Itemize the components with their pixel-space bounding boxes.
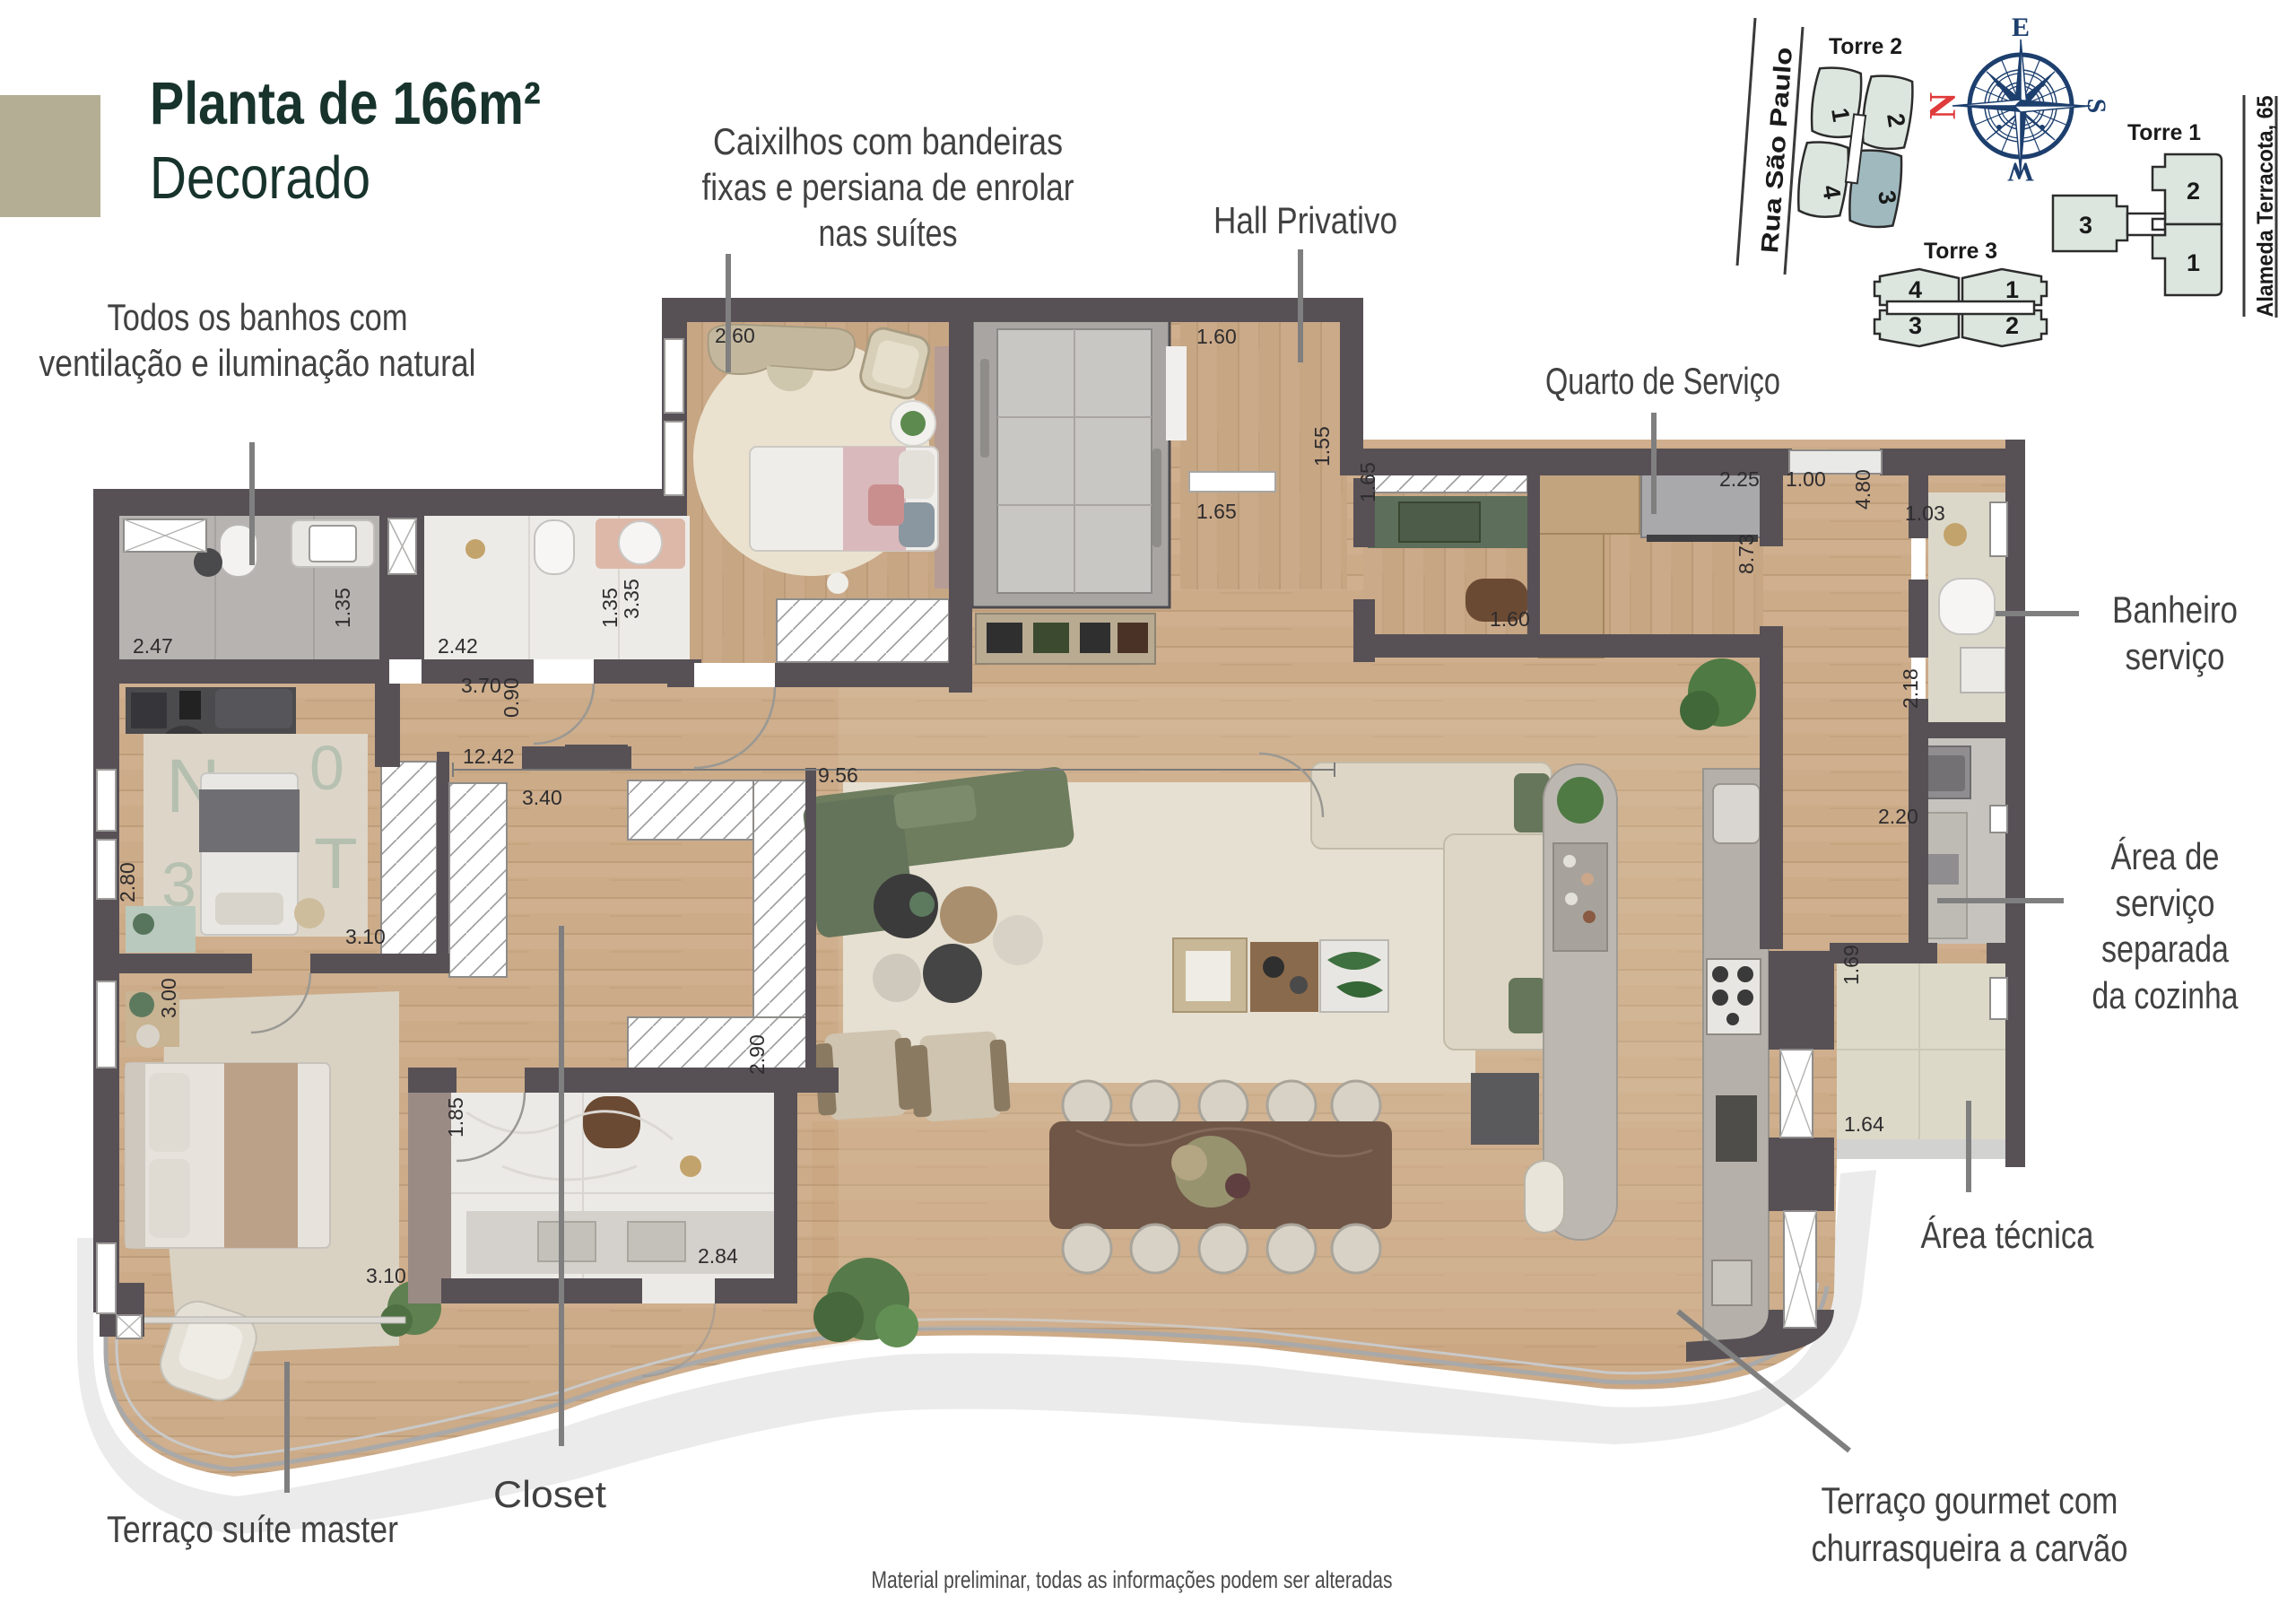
svg-text:2.60: 2.60 [715,324,755,347]
svg-text:Todos os banhos com: Todos os banhos com [108,296,408,338]
svg-text:8.73: 8.73 [1735,534,1758,574]
svg-text:Caixilhos com bandeiras: Caixilhos com bandeiras [713,120,1063,162]
svg-text:Área técnica: Área técnica [1921,1214,2095,1256]
svg-text:1.55: 1.55 [1310,426,1334,466]
svg-text:da cozinha: da cozinha [2092,974,2239,1016]
svg-text:Planta de 166m²: Planta de 166m² [150,70,541,137]
svg-text:2.18: 2.18 [1899,668,1922,709]
svg-text:Hall Privativo: Hall Privativo [1213,199,1397,241]
svg-text:3.10: 3.10 [345,925,386,948]
svg-text:Terraço suíte master: Terraço suíte master [107,1508,398,1550]
svg-text:2: 2 [2005,312,2019,339]
svg-text:S: S [2082,99,2111,114]
svg-text:1.35: 1.35 [598,588,622,628]
svg-text:2.25: 2.25 [1719,467,1760,491]
svg-text:4.80: 4.80 [1851,469,1874,510]
svg-text:2: 2 [2187,178,2200,205]
svg-text:Área de: Área de [2111,835,2220,877]
svg-text:2.20: 2.20 [1878,805,1918,828]
svg-text:serviço: serviço [2116,882,2215,924]
svg-text:2.90: 2.90 [745,1034,769,1075]
svg-text:ventilação e iluminação natura: ventilação e iluminação natural [39,342,476,384]
svg-text:3.00: 3.00 [157,978,180,1018]
svg-text:Torre 1: Torre 1 [2127,120,2201,145]
svg-text:E: E [2012,13,2030,42]
svg-text:T: T [314,824,358,903]
svg-text:3.70: 3.70 [461,674,501,697]
svg-text:Terraço gourmet com: Terraço gourmet com [1822,1479,2118,1521]
svg-text:3.40: 3.40 [522,786,562,809]
svg-text:W: W [2007,157,2034,187]
svg-text:12.42: 12.42 [463,745,515,768]
svg-text:3: 3 [2079,212,2092,239]
svg-text:2.42: 2.42 [438,634,478,658]
svg-text:3.35: 3.35 [620,579,643,619]
svg-text:Banheiro: Banheiro [2112,588,2238,631]
svg-text:separada: separada [2101,928,2230,970]
svg-text:1.85: 1.85 [444,1097,467,1138]
svg-text:1.65: 1.65 [1196,500,1237,523]
svg-text:2.47: 2.47 [133,634,173,658]
svg-text:Decorado: Decorado [150,144,370,212]
svg-text:Torre 3: Torre 3 [1924,239,1997,264]
svg-text:Alameda Terracota, 65: Alameda Terracota, 65 [2253,95,2278,317]
svg-text:nas suítes: nas suítes [819,212,958,254]
svg-text:serviço: serviço [2126,635,2225,677]
svg-text:Torre 2: Torre 2 [1829,34,1902,59]
svg-text:Material preliminar, todas as: Material preliminar, todas as informaçõe… [872,1566,1393,1593]
svg-text:1.00: 1.00 [1786,467,1826,491]
svg-text:1.60: 1.60 [1196,325,1237,348]
svg-text:2.80: 2.80 [116,862,139,902]
svg-text:1: 1 [2187,249,2200,276]
svg-text:1.60: 1.60 [1490,607,1530,631]
svg-text:1.64: 1.64 [1844,1112,1884,1136]
svg-text:2.84: 2.84 [698,1244,738,1268]
svg-text:N: N [1923,92,1964,119]
svg-text:Quarto de Serviço: Quarto de Serviço [1545,360,1780,402]
svg-text:0: 0 [309,733,344,803]
svg-text:Closet: Closet [493,1473,606,1515]
svg-text:0.90: 0.90 [500,677,523,718]
svg-text:3.10: 3.10 [366,1264,406,1287]
svg-text:3: 3 [1909,312,1922,339]
svg-text:1.69: 1.69 [1839,945,1863,985]
svg-text:1.35: 1.35 [331,588,354,628]
svg-text:1.65: 1.65 [1356,462,1379,502]
svg-text:fixas e persiana de enrolar: fixas e persiana de enrolar [702,166,1074,208]
svg-text:1: 1 [2005,276,2019,303]
svg-text:churrasqueira a carvão: churrasqueira a carvão [1812,1527,2128,1569]
svg-text:4: 4 [1909,276,1922,303]
svg-text:9.56: 9.56 [818,763,858,787]
svg-text:1.03: 1.03 [1905,501,1945,525]
